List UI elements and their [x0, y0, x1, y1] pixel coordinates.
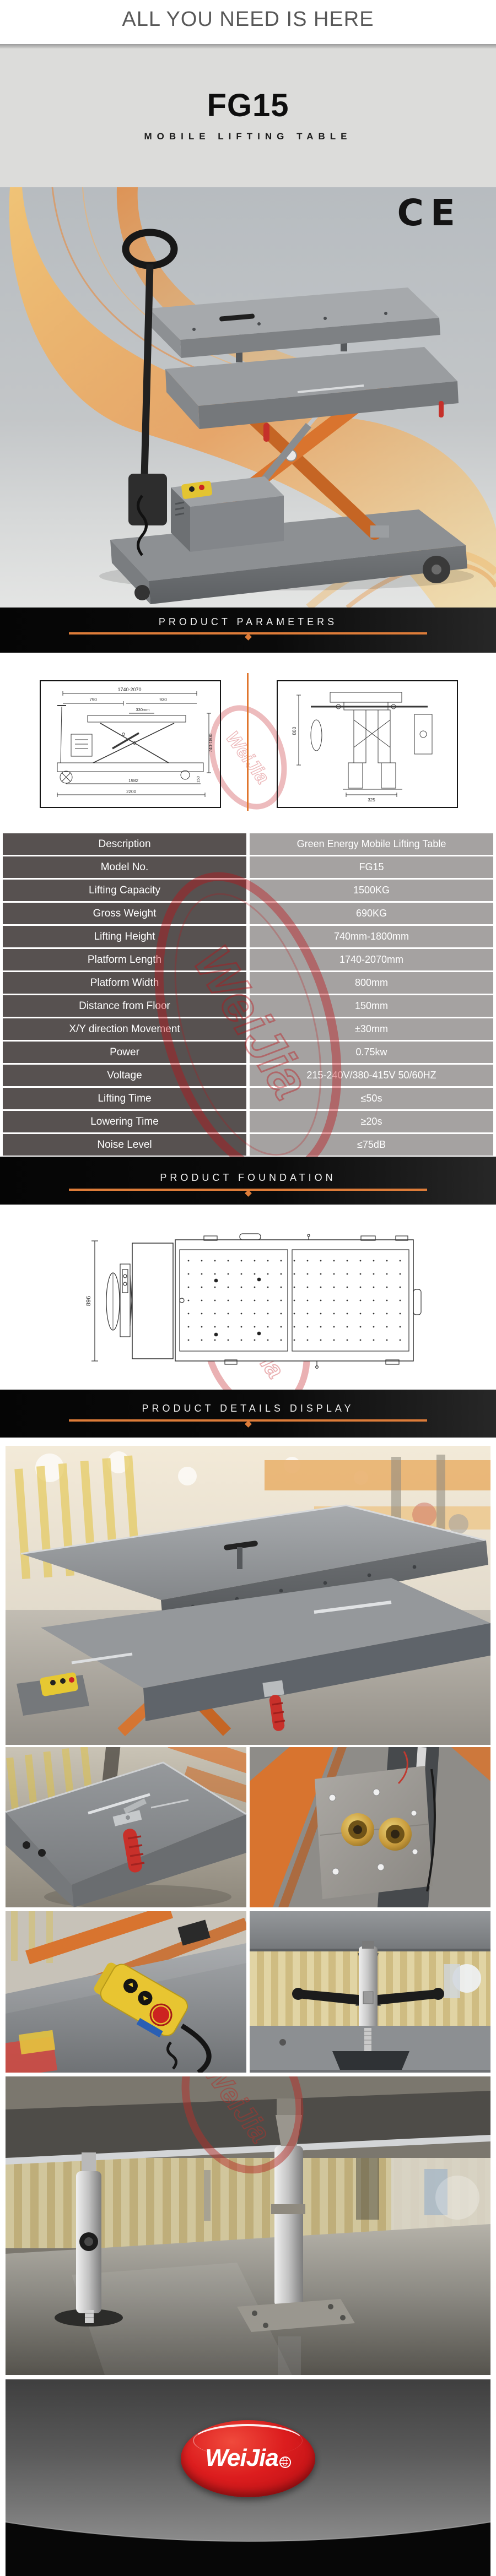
spec-value: ≥20s	[250, 1111, 493, 1132]
photo-t-handle	[250, 1911, 490, 2073]
section-title-details: PRODUCT DETAILS DISPLAY	[0, 1403, 496, 1414]
spec-value: Green Energy Mobile Lifting Table	[250, 833, 493, 855]
logo-text: WeiJia	[181, 2444, 315, 2472]
svg-text:896: 896	[85, 1296, 92, 1306]
svg-text:325: 325	[368, 798, 375, 802]
globe-icon	[279, 2456, 291, 2468]
photo-t-handle-render	[250, 1911, 490, 2073]
photo-control-pendant	[6, 1911, 246, 2073]
control-box	[171, 476, 284, 552]
table-row: Distance from Floor150mm	[3, 995, 493, 1017]
svg-text:930: 930	[159, 697, 167, 702]
model-subtitle: MOBILE LIFTING TABLE	[0, 131, 496, 142]
spec-label: Description	[3, 833, 246, 855]
model-name: FG15	[0, 87, 496, 124]
svg-text:1740-2070: 1740-2070	[117, 687, 141, 692]
spec-value: 1740-2070mm	[250, 949, 493, 970]
spec-value: ≤75dB	[250, 1134, 493, 1156]
svg-text:740-1800: 740-1800	[208, 734, 213, 752]
section-banner-parameters: PRODUCT PARAMETERS	[0, 608, 496, 653]
hero-product-image: CE	[0, 187, 496, 608]
spec-label: Platform Length	[3, 949, 246, 970]
table-row: Lifting Capacity1500KG	[3, 880, 493, 901]
spec-value: ±30mm	[250, 1018, 493, 1040]
ce-mark: CE	[397, 192, 462, 234]
spec-label: Lifting Capacity	[3, 880, 246, 901]
svg-text:790: 790	[89, 697, 97, 702]
table-row: Lifting Height740mm-1800mm	[3, 926, 493, 947]
model-header-panel: FG15 MOBILE LIFTING TABLE	[0, 44, 496, 187]
spec-label: Lifting Time	[3, 1088, 246, 1109]
fitting-plate	[315, 1766, 433, 1899]
footer-brand-panel: WeiJia	[6, 2379, 490, 2576]
svg-text:2200: 2200	[126, 789, 136, 794]
footer-curve	[6, 2515, 490, 2576]
photo-support-feet-render: WeiJia	[6, 2076, 490, 2375]
svg-text:800: 800	[292, 726, 297, 735]
end-view-sketch: 800 325	[278, 681, 455, 805]
section-banner-details: PRODUCT DETAILS DISPLAY	[0, 1390, 496, 1438]
table-row: Noise Level≤75dB	[3, 1134, 493, 1156]
side-view-sketch: 1740-2070 790 930 330mm 740-1800	[41, 681, 218, 805]
photo-support-feet: WeiJia	[6, 2076, 490, 2375]
spec-value: ≤50s	[250, 1088, 493, 1109]
section-title-foundation: PRODUCT FOUNDATION	[0, 1172, 496, 1184]
spec-label: Lifting Height	[3, 926, 246, 947]
photo-control-pendant-render	[6, 1911, 246, 2073]
spec-value: 800mm	[250, 972, 493, 994]
spec-value: 1500KG	[250, 880, 493, 901]
svg-text:330mm: 330mm	[136, 707, 149, 712]
table-row: Lowering Time≥20s	[3, 1111, 493, 1132]
banner-diamond-icon	[245, 633, 252, 641]
drawing-side-view: 1740-2070 790 930 330mm 740-1800	[40, 680, 221, 808]
table-row: Power0.75kw	[3, 1042, 493, 1063]
banner-underline	[69, 1189, 427, 1191]
bolt	[279, 2039, 286, 2046]
photo-corner-clamp	[6, 1747, 246, 1907]
table-row: Model No.FG15	[3, 856, 493, 878]
brand-logo: WeiJia	[181, 2420, 315, 2497]
background-rod	[204, 2170, 211, 2221]
banner-diamond-icon	[245, 1420, 252, 1428]
spec-label: X/Y direction Movement	[3, 1018, 246, 1040]
drawing-end-view: 800 325	[277, 680, 458, 808]
spec-value: FG15	[250, 856, 493, 878]
table-row: Lifting Time≤50s	[3, 1088, 493, 1109]
banner-underline	[69, 1419, 427, 1422]
svg-text:150: 150	[197, 776, 201, 783]
spec-label: Distance from Floor	[3, 995, 246, 1017]
photo-platform-overview	[6, 1446, 490, 1745]
table-row: Platform Width800mm	[3, 972, 493, 994]
logo-wordmark: WeiJia	[205, 2444, 278, 2471]
drawing-foundation-plan: 896	[0, 1231, 496, 1369]
spec-label: Model No.	[3, 856, 246, 878]
table-row: Platform Length1740-2070mm	[3, 949, 493, 970]
section-title-parameters: PRODUCT PARAMETERS	[0, 616, 496, 628]
spec-label: Gross Weight	[3, 903, 246, 924]
photo-platform-overview-render	[6, 1446, 490, 1745]
spec-value: 215-240V/380-415V 50/60HZ	[250, 1065, 493, 1086]
spec-value: 740mm-1800mm	[250, 926, 493, 947]
spec-label: Voltage	[3, 1065, 246, 1086]
spec-value: 150mm	[250, 995, 493, 1017]
photo-brass-fittings-render	[250, 1747, 490, 1907]
table-row: X/Y direction Movement±30mm	[3, 1018, 493, 1040]
spec-label: Noise Level	[3, 1134, 246, 1156]
spec-value: 0.75kw	[250, 1042, 493, 1063]
table-row: Gross Weight690KG	[3, 903, 493, 924]
spec-table: DescriptionGreen Energy Mobile Lifting T…	[3, 833, 493, 1157]
spec-label: Platform Width	[3, 972, 246, 994]
table-row: Voltage215-240V/380-415V 50/60HZ	[3, 1065, 493, 1086]
spec-value: 690KG	[250, 903, 493, 924]
orange-divider	[247, 673, 249, 811]
photo-brass-fittings	[250, 1747, 490, 1907]
hero-illustration	[0, 187, 496, 608]
table-row: DescriptionGreen Energy Mobile Lifting T…	[3, 833, 493, 855]
photo-corner-clamp-render	[6, 1747, 246, 1907]
banner-underline	[69, 632, 427, 634]
spec-label: Power	[3, 1042, 246, 1063]
spec-label: Lowering Time	[3, 1111, 246, 1132]
banner-diamond-icon	[245, 1190, 252, 1197]
product-detail-page: ALL YOU NEED IS HERE FG15 MOBILE LIFTING…	[0, 0, 496, 2576]
page-tagline: ALL YOU NEED IS HERE	[0, 0, 496, 41]
svg-text:1982: 1982	[128, 778, 138, 783]
section-banner-foundation: PRODUCT FOUNDATION	[0, 1157, 496, 1205]
